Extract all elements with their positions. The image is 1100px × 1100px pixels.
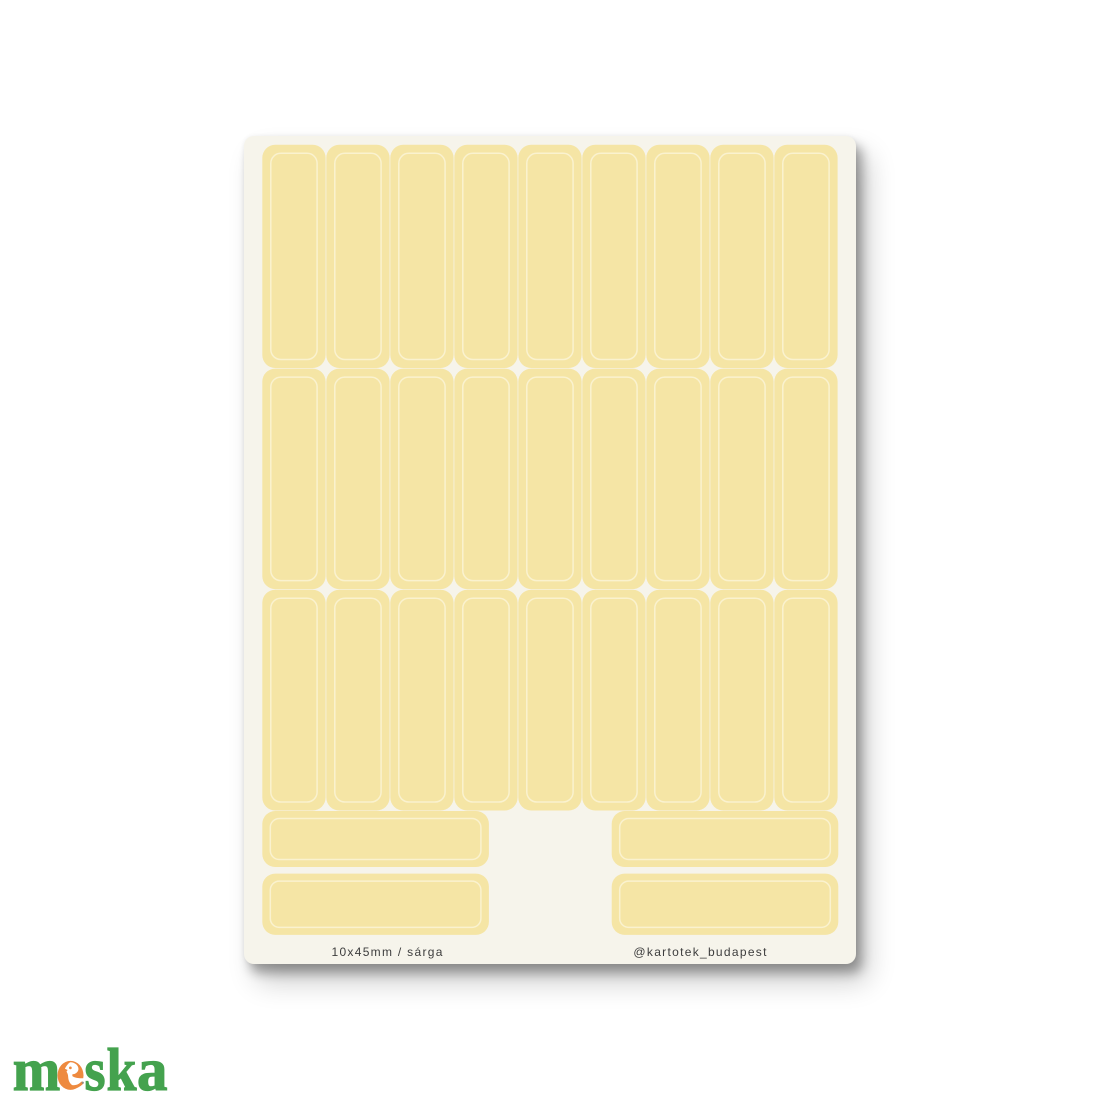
svg-text:s: s [85,1040,106,1100]
svg-text:m: m [13,1040,61,1100]
svg-text:a: a [137,1040,168,1100]
svg-text:k: k [107,1040,138,1100]
